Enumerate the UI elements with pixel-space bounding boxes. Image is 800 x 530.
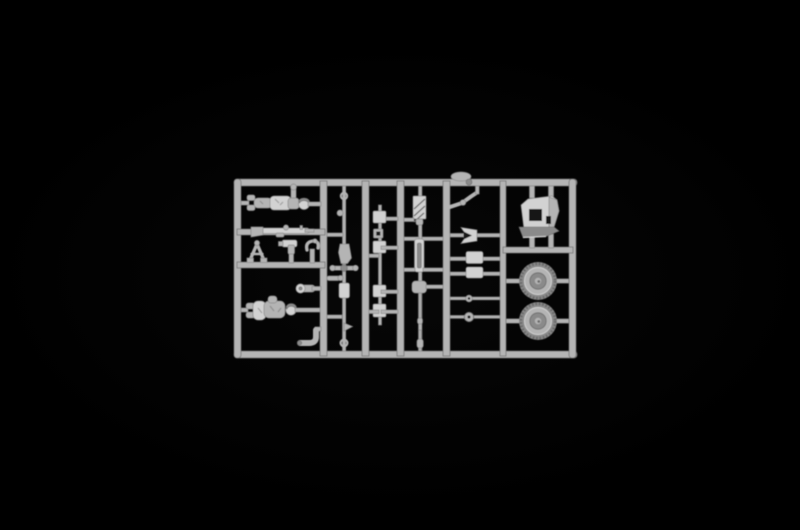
- box-on-rod-part-2: [450, 267, 500, 278]
- sprue-photo: [0, 0, 800, 530]
- pistol-grip-part: [279, 240, 298, 263]
- pipe-elbow-upper-part: [296, 284, 321, 293]
- small-box-parts: [369, 205, 398, 325]
- box-on-rod-part-1: [450, 252, 500, 264]
- photo-canvas: [0, 0, 800, 530]
- figure-part-crouching: [241, 296, 320, 320]
- ring-rod-small-part: [450, 295, 500, 302]
- gun-shield-part: [519, 186, 559, 248]
- ring-rod-gear-part: [450, 312, 500, 321]
- bipod-frame-part: [247, 240, 267, 262]
- hooked-lever-part: [307, 239, 319, 263]
- gun-barrel-assembly-part: [327, 186, 358, 351]
- road-wheel: [506, 262, 569, 300]
- road-wheel: [506, 302, 569, 340]
- cylinder-part: [404, 237, 443, 272]
- funnel-bracket-part: [450, 228, 500, 244]
- pipe-elbow-lower-part: [297, 327, 321, 345]
- wheels-layer: [506, 262, 569, 340]
- linkage-with-rod-part: [412, 281, 443, 351]
- hatched-slide-part: [404, 196, 426, 225]
- bent-crank-rod-part: [450, 186, 479, 207]
- figure-part-standing: [241, 184, 321, 211]
